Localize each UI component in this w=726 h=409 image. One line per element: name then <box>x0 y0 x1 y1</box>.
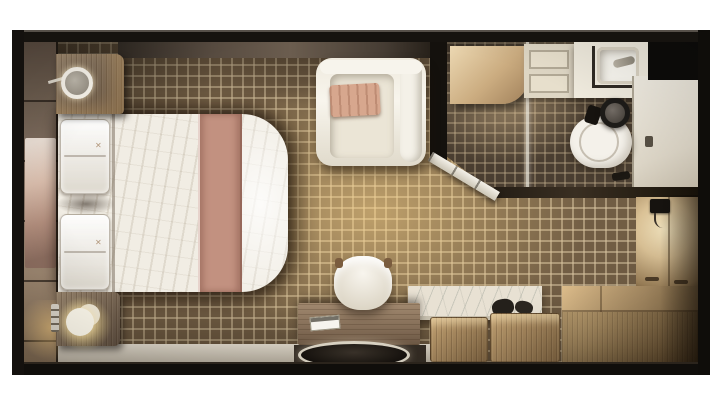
entry-floor <box>632 76 698 192</box>
bench-shading <box>562 286 700 362</box>
floorplan-render: ✕ ✕ <box>0 0 726 409</box>
vanity-cabinet <box>524 44 574 98</box>
armchair <box>316 58 426 166</box>
accent-pillow <box>329 83 381 118</box>
armchair-back <box>320 60 422 74</box>
storage-box <box>490 313 560 362</box>
door-handle <box>645 136 653 147</box>
toilet-seat-line <box>579 122 619 162</box>
armchair-arm <box>400 62 422 162</box>
pillow-crease <box>64 155 106 157</box>
cylinder-lamp <box>66 308 94 336</box>
pillow-stack: ✕ <box>60 214 110 290</box>
storage-box <box>430 317 488 362</box>
wall-top <box>12 30 710 42</box>
abstract-artwork <box>25 138 56 268</box>
wall-right <box>698 30 710 375</box>
wall-left <box>12 30 24 375</box>
bathroom-west-wall <box>430 40 447 162</box>
wardrobe-handle <box>674 280 688 284</box>
pillow-emblem: ✕ <box>95 239 102 247</box>
sink-shadow-line <box>592 46 595 88</box>
pillow-gap-shadow <box>58 194 114 214</box>
pillow-emblem: ✕ <box>95 142 102 150</box>
chair-armrest <box>384 258 392 268</box>
pillow-crease <box>64 251 106 253</box>
chair-armrest <box>335 258 343 268</box>
pillow-stack: ✕ <box>60 119 110 194</box>
top-wall-face <box>118 42 432 58</box>
vanity-cabinet-panel <box>529 50 569 69</box>
vanity-cabinet-panel <box>529 74 569 93</box>
switch-panel <box>51 304 59 332</box>
desk-card <box>309 315 340 332</box>
bed: ✕ ✕ <box>58 114 288 292</box>
ring-lamp <box>61 67 93 99</box>
bench-seat <box>562 286 700 362</box>
wall-phone <box>650 199 670 213</box>
wardrobe-handle <box>645 277 659 281</box>
toilet-cistern-cap <box>605 103 625 123</box>
bed-runner <box>198 114 242 292</box>
shower-shelf <box>450 46 528 104</box>
wall-bottom <box>12 362 710 375</box>
